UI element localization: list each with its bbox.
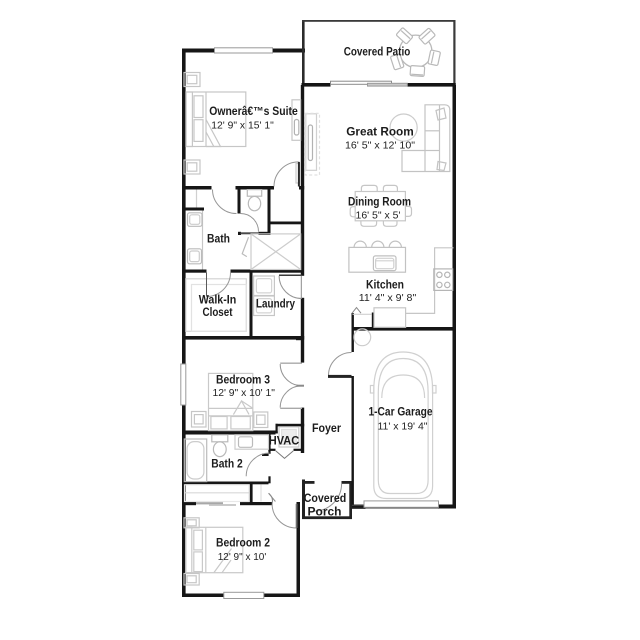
- svg-text:HVAC: HVAC: [269, 435, 300, 447]
- svg-text:Covered: Covered: [304, 493, 347, 505]
- svg-text:16' 5" x 12' 10": 16' 5" x 12' 10": [345, 139, 415, 151]
- svg-text:Great Room: Great Room: [346, 127, 414, 139]
- svg-text:11' x 19' 4": 11' x 19' 4": [378, 420, 428, 432]
- svg-text:Covered Patio: Covered Patio: [344, 47, 411, 59]
- svg-text:Walk-In: Walk-In: [199, 294, 237, 306]
- svg-text:Bedroom 3: Bedroom 3: [216, 374, 270, 386]
- svg-text:12' 9" x 10' 1": 12' 9" x 10' 1": [212, 387, 275, 399]
- svg-text:1-Car Garage: 1-Car Garage: [369, 406, 433, 418]
- svg-text:16' 5" x 5': 16' 5" x 5': [356, 209, 401, 221]
- svg-text:Closet: Closet: [203, 307, 233, 319]
- svg-text:Foyer: Foyer: [312, 423, 341, 435]
- svg-text:12' 9" x 15' 1": 12' 9" x 15' 1": [211, 119, 274, 131]
- svg-text:Bedroom 2: Bedroom 2: [216, 537, 270, 549]
- svg-text:Kitchen: Kitchen: [366, 279, 404, 291]
- svg-text:Laundry: Laundry: [256, 298, 296, 310]
- svg-text:Ownerâ€™s Suite: Ownerâ€™s Suite: [209, 106, 298, 118]
- svg-text:Dining Room: Dining Room: [348, 196, 411, 208]
- svg-text:12' 9" x 10': 12' 9" x 10': [218, 551, 267, 563]
- svg-text:11' 4" x 9' 8": 11' 4" x 9' 8": [359, 292, 417, 304]
- svg-text:Bath 2: Bath 2: [211, 458, 243, 470]
- svg-text:Porch: Porch: [308, 506, 342, 518]
- svg-text:Bath: Bath: [207, 233, 230, 245]
